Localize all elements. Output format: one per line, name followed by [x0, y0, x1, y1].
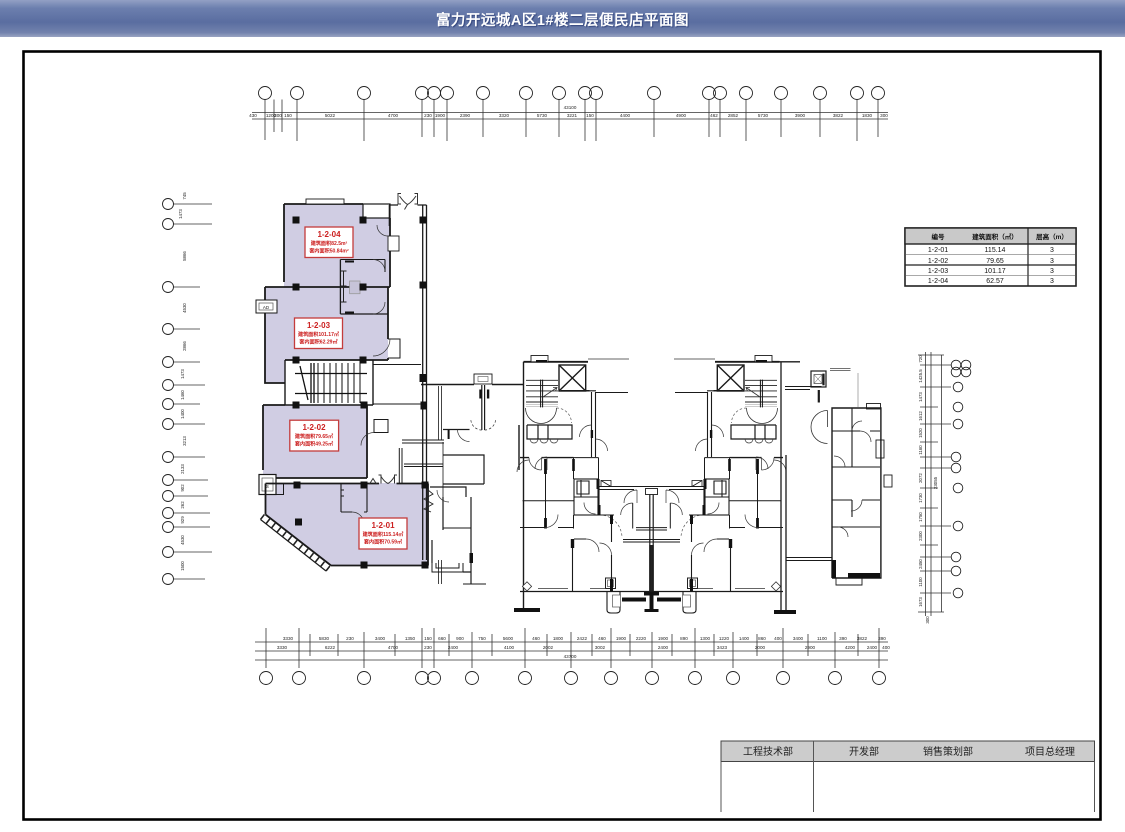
svg-text:3330: 3330 [283, 636, 294, 641]
svg-text:902: 902 [180, 484, 185, 492]
svg-text:101.17: 101.17 [984, 268, 1006, 275]
svg-text:建筑面积（㎡）: 建筑面积（㎡） [971, 232, 1018, 241]
svg-text:1-2-01: 1-2-01 [928, 247, 948, 254]
svg-text:3: 3 [1050, 268, 1054, 275]
svg-text:1-2-03: 1-2-03 [307, 321, 331, 330]
svg-text:860: 860 [758, 636, 766, 641]
svg-text:150: 150 [284, 113, 292, 118]
svg-text:套内面积50.84m²: 套内面积50.84m² [309, 248, 349, 255]
svg-text:2866: 2866 [182, 341, 187, 351]
svg-text:1473: 1473 [918, 392, 923, 402]
svg-text:2072: 2072 [918, 473, 923, 483]
svg-text:5022: 5022 [325, 113, 336, 118]
svg-text:1400: 1400 [180, 409, 185, 419]
svg-text:230: 230 [424, 645, 432, 650]
svg-text:300: 300 [274, 113, 282, 118]
svg-text:890: 890 [680, 636, 688, 641]
svg-text:2400: 2400 [658, 645, 669, 650]
svg-text:1300: 1300 [700, 636, 711, 641]
svg-text:5730: 5730 [758, 113, 769, 118]
svg-text:4700: 4700 [388, 113, 399, 118]
svg-text:1800: 1800 [553, 636, 564, 641]
svg-text:套内面积70.59㎡: 套内面积70.59㎡ [364, 539, 403, 546]
svg-text:1100: 1100 [817, 636, 827, 641]
svg-text:套内面积49.25㎡: 套内面积49.25㎡ [295, 441, 334, 448]
svg-text:1830: 1830 [862, 113, 873, 118]
svg-text:62.57: 62.57 [986, 278, 1004, 285]
svg-text:1-2-01: 1-2-01 [371, 521, 395, 530]
svg-text:3423: 3423 [717, 645, 728, 650]
svg-text:建筑面积101.17㎡: 建筑面积101.17㎡ [298, 331, 340, 338]
svg-text:1473: 1473 [178, 209, 183, 219]
svg-text:3: 3 [1050, 258, 1054, 265]
svg-text:1-2-02: 1-2-02 [302, 423, 326, 432]
svg-text:460: 460 [598, 636, 606, 641]
svg-text:1900: 1900 [658, 636, 669, 641]
svg-text:150: 150 [586, 113, 594, 118]
svg-text:建筑面积82.5m²: 建筑面积82.5m² [311, 240, 348, 247]
svg-text:2300: 2300 [918, 531, 923, 541]
svg-text:1-2-04: 1-2-04 [928, 278, 948, 285]
svg-text:项目总经理: 项目总经理 [1025, 745, 1075, 758]
svg-text:462: 462 [710, 113, 718, 118]
svg-text:4900: 4900 [676, 113, 687, 118]
svg-text:4100: 4100 [504, 645, 515, 650]
svg-text:1350: 1350 [405, 636, 416, 641]
svg-text:430: 430 [249, 113, 257, 118]
svg-text:2450: 2450 [918, 559, 923, 569]
svg-text:2422: 2422 [577, 636, 588, 641]
svg-text:23055: 23055 [933, 476, 938, 489]
svg-text:2400: 2400 [448, 645, 459, 650]
svg-text:套内面积62.29㎡: 套内面积62.29㎡ [299, 339, 338, 346]
svg-text:262: 262 [180, 501, 185, 509]
svg-text:390: 390 [878, 636, 886, 641]
svg-text:1612: 1612 [918, 411, 923, 421]
svg-text:1520: 1520 [918, 428, 923, 438]
svg-text:建筑面积79.65㎡: 建筑面积79.65㎡ [295, 433, 334, 440]
svg-text:3822: 3822 [857, 636, 868, 641]
svg-text:460: 460 [532, 636, 540, 641]
svg-text:3400: 3400 [375, 636, 386, 641]
svg-text:230: 230 [346, 636, 354, 641]
svg-text:390: 390 [839, 636, 847, 641]
svg-text:230: 230 [424, 113, 432, 118]
svg-text:1500: 1500 [180, 561, 185, 571]
svg-text:编号: 编号 [932, 232, 946, 241]
svg-text:3320: 3320 [499, 113, 510, 118]
svg-text:2000: 2000 [755, 645, 766, 650]
svg-text:1460: 1460 [180, 390, 185, 400]
svg-text:900: 900 [456, 636, 464, 641]
svg-text:2220: 2220 [636, 636, 647, 641]
svg-text:1400: 1400 [739, 636, 750, 641]
svg-text:3822: 3822 [833, 113, 844, 118]
svg-text:1750: 1750 [918, 512, 923, 522]
svg-text:400: 400 [882, 645, 890, 650]
svg-text:79.65: 79.65 [986, 258, 1004, 265]
svg-text:43700: 43700 [564, 654, 577, 659]
svg-text:300: 300 [925, 616, 930, 624]
svg-text:400: 400 [774, 636, 782, 641]
svg-text:4700: 4700 [388, 645, 399, 650]
svg-text:300: 300 [880, 113, 888, 118]
svg-text:3213: 3213 [182, 436, 187, 446]
svg-text:2400: 2400 [867, 645, 878, 650]
svg-text:销售策划部: 销售策划部 [923, 745, 973, 758]
svg-text:1-2-02: 1-2-02 [928, 258, 948, 265]
svg-text:4200: 4200 [845, 645, 856, 650]
svg-text:2852: 2852 [728, 113, 739, 118]
svg-text:3900: 3900 [795, 113, 806, 118]
svg-text:4400: 4400 [620, 113, 631, 118]
svg-text:2900: 2900 [805, 645, 816, 650]
svg-text:AD: AD [263, 305, 270, 310]
svg-text:2133: 2133 [180, 464, 185, 474]
svg-text:1730: 1730 [918, 493, 923, 503]
svg-text:2390: 2390 [460, 113, 471, 118]
svg-text:3330: 3330 [277, 645, 288, 650]
svg-text:43100: 43100 [564, 105, 577, 110]
svg-text:开发部: 开发部 [849, 745, 879, 758]
svg-text:1220: 1220 [719, 636, 730, 641]
svg-text:3002: 3002 [595, 645, 606, 650]
svg-text:1900: 1900 [435, 113, 446, 118]
svg-text:5866: 5866 [182, 251, 187, 261]
svg-text:2002: 2002 [543, 645, 554, 650]
svg-text:1673: 1673 [918, 597, 923, 607]
svg-text:1-2-04: 1-2-04 [317, 230, 341, 239]
svg-text:745: 745 [182, 192, 187, 200]
svg-text:3: 3 [1050, 278, 1054, 285]
svg-text:150: 150 [424, 636, 432, 641]
svg-text:5730: 5730 [537, 113, 548, 118]
svg-text:115.14: 115.14 [985, 247, 1006, 254]
svg-text:5830: 5830 [319, 636, 330, 641]
svg-text:750: 750 [478, 636, 486, 641]
svg-text:1-2-03: 1-2-03 [928, 268, 948, 275]
svg-text:4530: 4530 [180, 535, 185, 545]
svg-text:1100: 1100 [918, 577, 923, 587]
svg-text:3221: 3221 [567, 113, 578, 118]
svg-text:720: 720 [918, 355, 923, 363]
svg-text:1900: 1900 [616, 636, 627, 641]
svg-text:929: 929 [180, 516, 185, 524]
svg-text:5600: 5600 [503, 636, 514, 641]
svg-text:层高（m）: 层高（m） [1035, 232, 1068, 241]
svg-text:3: 3 [1050, 247, 1054, 254]
svg-text:1425.5: 1425.5 [918, 369, 923, 383]
svg-text:1160: 1160 [918, 445, 923, 455]
svg-text:工程技术部: 工程技术部 [743, 745, 793, 758]
svg-text:3400: 3400 [793, 636, 804, 641]
svg-text:660: 660 [438, 636, 446, 641]
svg-text:建筑面积115.14㎡: 建筑面积115.14㎡ [363, 531, 405, 538]
svg-text:6222: 6222 [325, 645, 336, 650]
svg-text:1473: 1473 [180, 369, 185, 379]
svg-text:4530: 4530 [182, 303, 187, 313]
